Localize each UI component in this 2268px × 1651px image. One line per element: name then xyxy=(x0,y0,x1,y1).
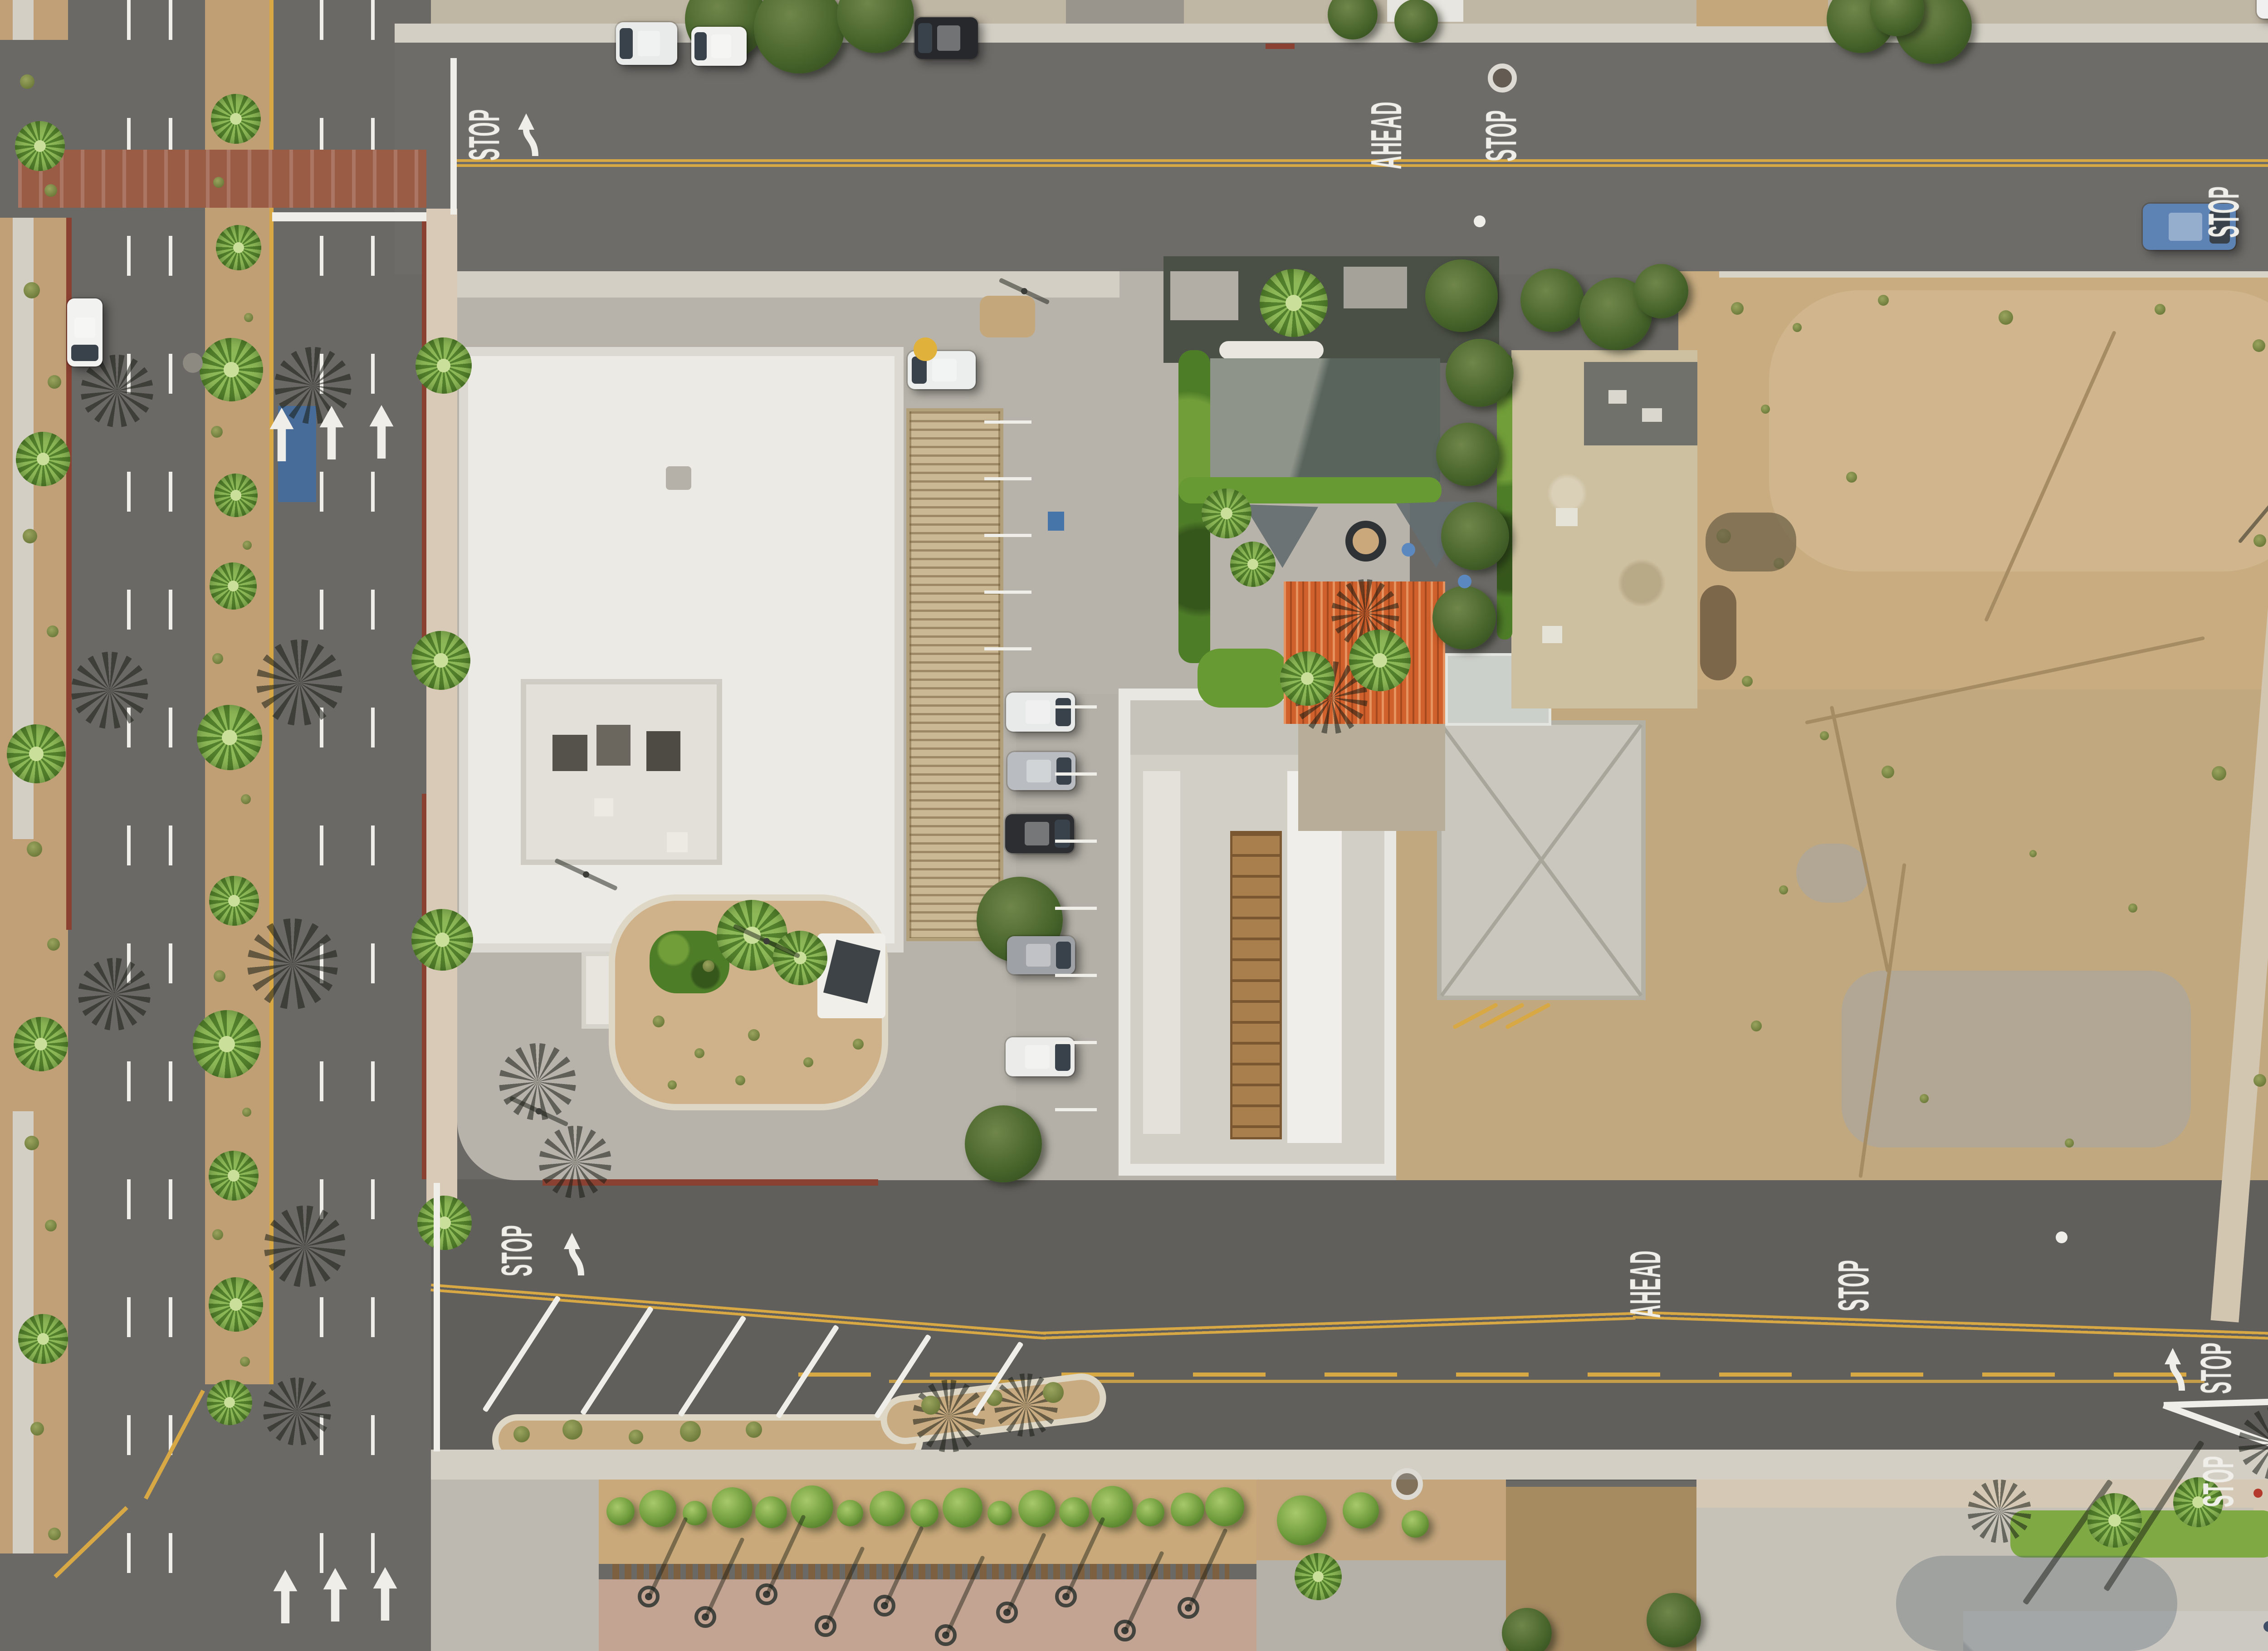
shrub xyxy=(1742,676,1753,687)
fitness-equipment xyxy=(1053,1584,1079,1609)
shadow-line xyxy=(1505,1002,1550,1030)
shrub xyxy=(1999,310,2013,325)
fitness-equipment xyxy=(933,1622,958,1648)
parked-car xyxy=(1006,693,1075,732)
fitness-equipment xyxy=(1176,1595,1201,1621)
palm-tree xyxy=(1202,488,1251,538)
shrub xyxy=(668,1080,677,1089)
manhole-ring xyxy=(1488,63,1517,93)
palm-tree xyxy=(14,1017,68,1071)
lane-arrow-left-turn xyxy=(515,112,542,159)
parked-car xyxy=(1005,814,1074,853)
leafy-tree xyxy=(754,0,845,73)
round-tree xyxy=(870,1491,905,1526)
shrub xyxy=(803,1057,813,1067)
parked-car xyxy=(1007,752,1075,790)
palm-shadow xyxy=(274,347,352,424)
round-tree xyxy=(1205,1487,1244,1526)
leafy-tree xyxy=(1432,586,1496,650)
round-tree xyxy=(1277,1495,1327,1545)
shrub xyxy=(47,938,60,951)
shrub xyxy=(24,1136,39,1150)
round-tree xyxy=(1059,1497,1089,1527)
parking-stall-line xyxy=(1055,907,1097,910)
shrub xyxy=(562,1420,582,1440)
shadow-line xyxy=(1478,1002,1524,1030)
shadow-line xyxy=(1984,331,2116,622)
palm-tree xyxy=(209,1151,259,1201)
shrub xyxy=(2029,850,2037,857)
palm-tree xyxy=(1349,630,1411,691)
shrub xyxy=(213,177,224,188)
shrub xyxy=(1761,405,1770,414)
pavement-dot xyxy=(763,938,770,944)
round-tree xyxy=(910,1499,938,1527)
pavement-dot xyxy=(1021,288,1027,294)
shrub xyxy=(1878,295,1889,306)
shrub xyxy=(735,1075,745,1085)
shrub xyxy=(748,1029,760,1041)
scene-items-layer: STOPAHEADSTOPSTOPSTOPAHEADSTOPSTOPSTOP xyxy=(0,0,2268,1651)
palm-tree xyxy=(18,1314,68,1364)
fitness-equipment xyxy=(1112,1618,1138,1643)
pavement-dot xyxy=(2263,1621,2268,1632)
shrub xyxy=(2253,1074,2266,1087)
shrub xyxy=(211,426,223,438)
pavement-text: STOP xyxy=(2194,1456,2244,1507)
palm-tree xyxy=(15,121,65,171)
surface-patch xyxy=(434,1183,440,1451)
parking-stall-line xyxy=(1055,705,1097,708)
shrub xyxy=(1846,472,1857,483)
pavement-dot xyxy=(183,353,203,373)
palm-tree xyxy=(210,562,257,610)
surface-patch xyxy=(1700,585,1736,680)
shrub xyxy=(513,1426,530,1442)
pavement-dot xyxy=(2253,1489,2263,1498)
parked-car xyxy=(616,22,677,65)
lane-arrow-left-turn xyxy=(561,1231,588,1278)
round-tree xyxy=(943,1488,982,1528)
leafy-tree xyxy=(965,1105,1042,1182)
palm-shadow xyxy=(1968,1480,2031,1543)
palm-tree xyxy=(214,474,258,517)
pavement-text: STOP xyxy=(1829,1260,1879,1311)
shrub xyxy=(1731,302,1744,315)
hatch-stripe xyxy=(482,1295,561,1412)
palm-tree xyxy=(209,876,259,926)
shrub xyxy=(853,1039,864,1050)
parking-stall-line xyxy=(1055,772,1097,776)
leafy-tree xyxy=(1502,1608,1552,1651)
round-tree xyxy=(639,1490,676,1527)
pavement-dot xyxy=(1402,543,1415,557)
shrub xyxy=(1882,766,1894,778)
palm-shadow xyxy=(78,958,151,1031)
shrub xyxy=(2155,304,2165,315)
shadow-line xyxy=(1830,706,1890,973)
leafy-tree xyxy=(1394,0,1438,43)
palm-tree xyxy=(200,338,263,401)
shadow-line xyxy=(1452,1002,1498,1030)
pavement-text: AHEAD xyxy=(1621,1250,1671,1318)
shrub xyxy=(746,1421,762,1438)
parked-car xyxy=(67,298,103,366)
palm-tree xyxy=(2087,1493,2142,1548)
palm-tree xyxy=(7,724,66,783)
pavement-dot xyxy=(583,871,589,878)
round-tree xyxy=(987,1501,1012,1525)
shrub xyxy=(2253,534,2266,547)
shrub xyxy=(240,1357,250,1367)
round-tree xyxy=(1343,1492,1379,1529)
palm-tree xyxy=(1280,651,1334,706)
utility-marker xyxy=(1560,1217,1586,1243)
surface-patch xyxy=(1266,44,1295,49)
palm-tree xyxy=(209,1277,263,1332)
leafy-tree xyxy=(1436,423,1500,486)
shadow-line xyxy=(1858,863,1906,1178)
palm-shadow xyxy=(256,640,342,726)
leafy-tree xyxy=(1446,339,1514,407)
round-tree xyxy=(1171,1493,1204,1526)
shrub xyxy=(1820,731,1829,740)
palm-tree xyxy=(417,1196,472,1250)
parking-stall-line xyxy=(1055,974,1097,977)
shrub xyxy=(212,653,223,664)
fitness-equipment xyxy=(636,1584,661,1609)
leafy-tree xyxy=(1647,1593,1701,1647)
parking-stall-line xyxy=(984,647,1031,650)
shrub xyxy=(629,1430,643,1444)
pavement-text: AHEAD xyxy=(1362,101,1412,169)
round-tree xyxy=(1136,1498,1164,1526)
parked-car xyxy=(914,17,978,59)
shrub xyxy=(47,625,59,637)
palm-tree xyxy=(1295,1553,1342,1600)
parking-stall-line xyxy=(984,534,1031,537)
parking-stall-line xyxy=(984,420,1031,424)
pavement-text: STOP xyxy=(492,1225,542,1276)
palm-tree xyxy=(1260,269,1328,337)
round-tree xyxy=(1018,1490,1056,1527)
shrub xyxy=(44,184,57,197)
shrub xyxy=(45,1220,57,1231)
palm-tree xyxy=(207,1380,252,1425)
round-tree xyxy=(755,1496,787,1528)
hatch-stripe xyxy=(678,1315,747,1417)
shrub xyxy=(48,375,61,389)
pavement-dot xyxy=(914,337,937,361)
shrub xyxy=(23,529,37,543)
shrub xyxy=(241,794,251,804)
aerial-photo-scene: STOPAHEADSTOPSTOPSTOPAHEADSTOPSTOPSTOP xyxy=(0,0,2268,1651)
pavement-dot xyxy=(1474,215,1486,227)
shrub xyxy=(48,1528,61,1540)
shadow-line xyxy=(1805,636,2205,725)
fitness-equipment xyxy=(693,1604,718,1630)
shrub xyxy=(2212,766,2226,781)
fitness-equipment xyxy=(994,1600,1020,1625)
shrub xyxy=(1043,1382,1064,1403)
parking-stall-line xyxy=(1055,840,1097,843)
shrub xyxy=(27,841,42,857)
parked-car xyxy=(2257,0,2268,19)
palm-tree xyxy=(415,337,472,394)
shrub xyxy=(680,1421,701,1442)
parking-stall-line xyxy=(1055,1108,1097,1111)
shrub xyxy=(1920,1094,1929,1103)
leafy-tree xyxy=(1520,269,1584,332)
palm-shadow xyxy=(71,652,148,729)
lane-arrow-straight xyxy=(370,1567,400,1621)
pavement-text: STOP xyxy=(1476,110,1526,161)
shrub xyxy=(244,313,253,322)
leafy-tree xyxy=(1634,264,1688,318)
hatch-stripe xyxy=(776,1324,840,1419)
palm-shadow xyxy=(264,1206,346,1287)
round-tree xyxy=(837,1500,863,1526)
pavement-dot xyxy=(2056,1231,2068,1243)
leafy-tree xyxy=(1441,502,1509,570)
shrub xyxy=(243,541,252,550)
parking-stall-line xyxy=(1055,1041,1097,1044)
surface-patch xyxy=(1048,512,1064,531)
shrub xyxy=(214,970,225,982)
lane-arrow-straight xyxy=(367,405,396,459)
pavement-text: STOP xyxy=(2191,1342,2241,1394)
surface-patch xyxy=(1706,513,1796,571)
round-tree xyxy=(1091,1486,1133,1528)
leafy-tree xyxy=(1328,0,1378,39)
palm-shadow xyxy=(913,1380,985,1452)
round-tree xyxy=(791,1485,833,1528)
palm-tree xyxy=(197,705,262,770)
pavement-text: STOP xyxy=(2199,186,2249,238)
palm-shadow xyxy=(247,918,338,1009)
fitness-equipment xyxy=(754,1582,779,1607)
leafy-tree xyxy=(1425,259,1498,332)
fitness-equipment xyxy=(872,1593,897,1618)
shrub xyxy=(2128,904,2137,913)
manhole-ring xyxy=(1391,1468,1423,1500)
parked-car xyxy=(1007,936,1075,974)
parking-stall-line xyxy=(984,477,1031,480)
shrub xyxy=(242,1108,251,1117)
lane-arrow-straight xyxy=(320,1568,350,1622)
parking-stall-line xyxy=(984,591,1031,594)
palm-tree xyxy=(1230,542,1276,587)
shrub xyxy=(1793,323,1802,332)
shrub xyxy=(653,1016,665,1027)
shrub xyxy=(2065,1138,2074,1148)
shrub xyxy=(212,1229,223,1240)
palm-tree xyxy=(193,1010,261,1078)
round-tree xyxy=(712,1487,753,1528)
shrub xyxy=(20,74,34,89)
lane-arrow-left-turn xyxy=(2161,1346,2189,1393)
round-tree xyxy=(606,1497,635,1525)
palm-tree xyxy=(16,432,70,486)
lane-arrow-straight xyxy=(270,1570,300,1623)
pavement-text: STOP xyxy=(459,109,509,161)
palm-shadow xyxy=(263,1377,331,1446)
palm-tree xyxy=(411,631,470,690)
pavement-dot xyxy=(536,1108,542,1114)
shrub xyxy=(2253,339,2265,352)
shrub xyxy=(703,960,714,972)
palm-shadow xyxy=(539,1126,611,1198)
shrub xyxy=(24,282,40,298)
round-tree xyxy=(1402,1510,1429,1538)
palm-tree xyxy=(211,94,261,144)
shrub xyxy=(1779,885,1788,894)
shrub xyxy=(921,1396,940,1415)
pavement-dot xyxy=(1458,575,1471,588)
shrub xyxy=(1751,1021,1762,1031)
palm-tree xyxy=(411,909,473,971)
palm-tree xyxy=(216,225,261,270)
fitness-equipment xyxy=(813,1613,838,1639)
surface-patch xyxy=(450,58,457,215)
palm-tree xyxy=(773,931,827,985)
shrub xyxy=(30,1422,44,1436)
shrub xyxy=(694,1048,704,1058)
leafy-tree xyxy=(837,0,914,53)
parked-car xyxy=(691,27,747,66)
hatch-stripe xyxy=(580,1306,654,1415)
surface-patch xyxy=(272,212,426,221)
